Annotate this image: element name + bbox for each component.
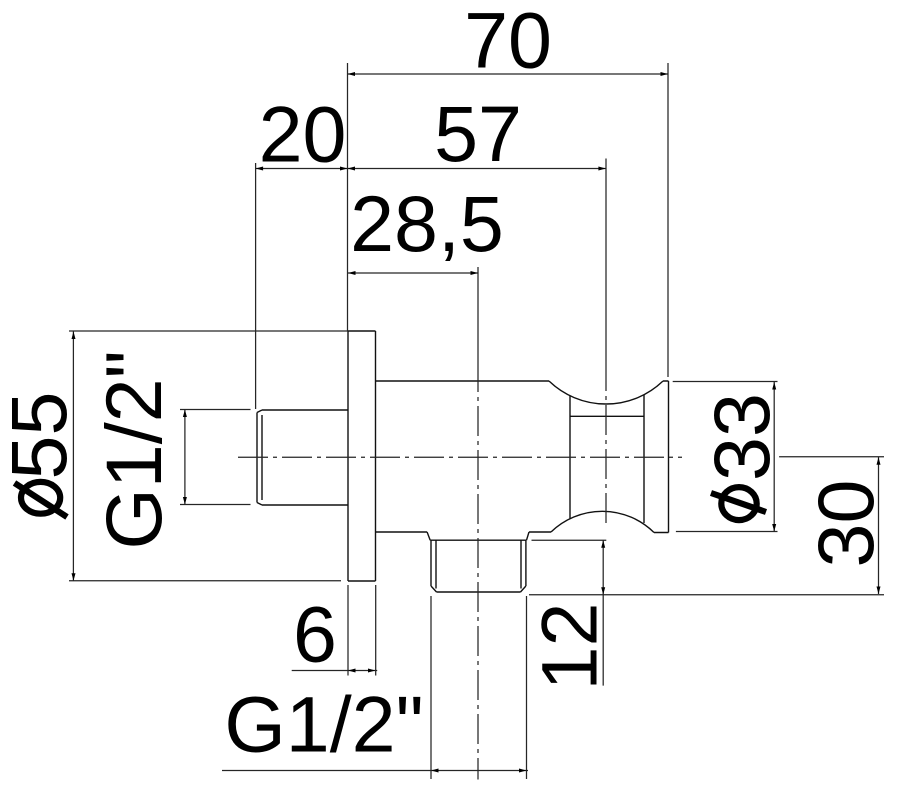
svg-text:G1/2": G1/2" (89, 350, 178, 549)
svg-text:12: 12 (525, 603, 614, 691)
svg-text:33: 33 (697, 393, 786, 481)
svg-text:55: 55 (0, 392, 83, 480)
svg-text:70: 70 (464, 0, 552, 85)
svg-text:28,5: 28,5 (350, 179, 504, 268)
svg-text:G1/2": G1/2" (224, 680, 423, 769)
svg-text:57: 57 (434, 89, 522, 178)
svg-text:20: 20 (259, 90, 347, 179)
svg-text:6: 6 (293, 590, 337, 679)
svg-text:30: 30 (801, 480, 890, 568)
